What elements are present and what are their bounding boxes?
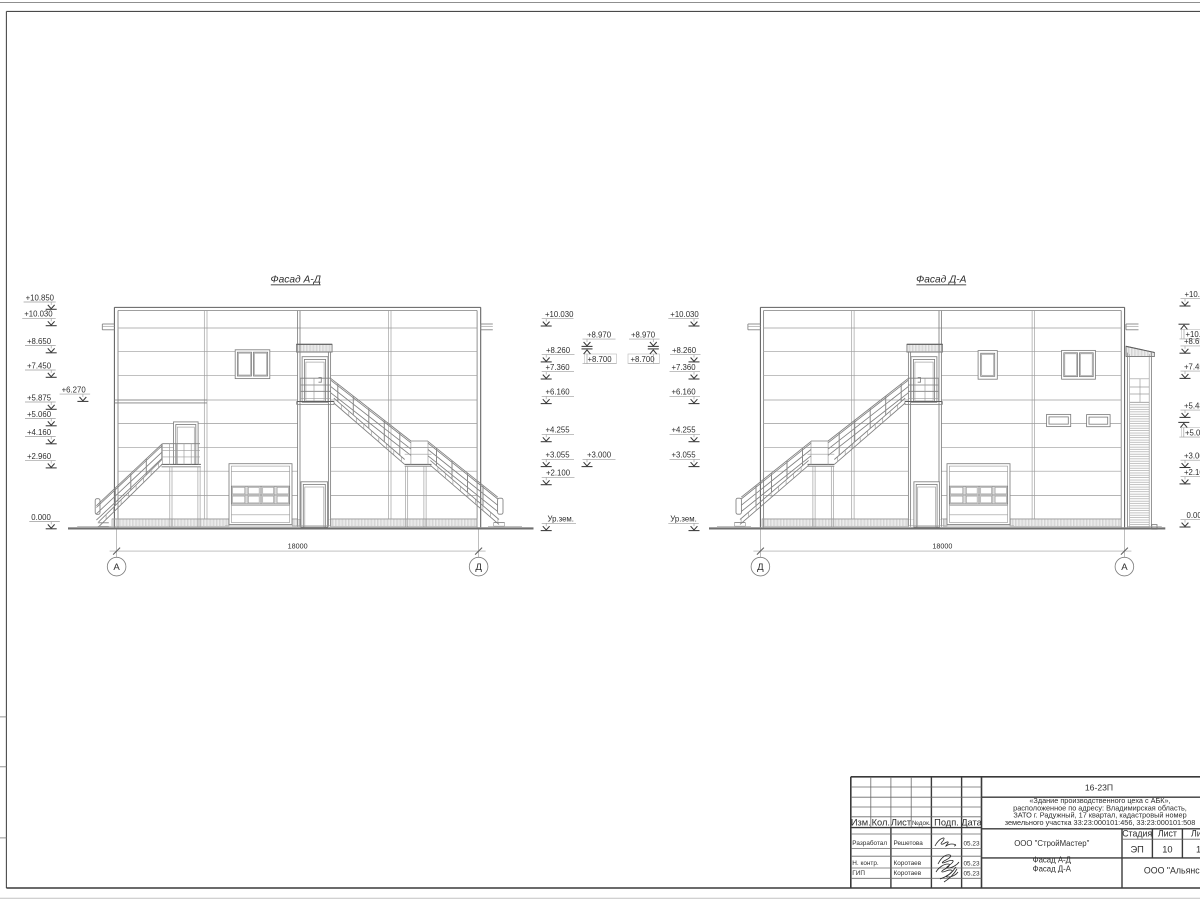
svg-text:Лист: Лист (891, 817, 912, 827)
svg-text:+6.160: +6.160 (546, 388, 571, 397)
svg-text:Фасад А-Д: Фасад А-Д (271, 274, 321, 285)
svg-text:ООО "СтройМастер": ООО "СтройМастер" (1014, 839, 1089, 848)
svg-text:+10.850: +10.850 (1185, 290, 1200, 299)
svg-text:+8.700: +8.700 (588, 355, 613, 364)
svg-text:Стадия: Стадия (1122, 829, 1152, 839)
svg-text:+3.055: +3.055 (546, 451, 571, 460)
svg-text:земельного участка 33:23:00010: земельного участка 33:23:000101:456, 33:… (1005, 818, 1196, 827)
svg-text:+10.850: +10.850 (26, 293, 55, 302)
svg-text:Кол.: Кол. (872, 817, 890, 827)
svg-text:05.23: 05.23 (964, 870, 980, 877)
svg-text:+8.260: +8.260 (672, 346, 697, 355)
svg-text:0.000: 0.000 (1187, 511, 1200, 520)
svg-text:Д: Д (475, 562, 482, 573)
svg-text:Фасад А-Д: Фасад А-Д (1033, 856, 1072, 865)
svg-text:+8.650: +8.650 (1184, 337, 1200, 346)
svg-text:+10.030: +10.030 (545, 310, 574, 319)
svg-text:Коротаев: Коротаев (894, 860, 922, 867)
svg-text:Фасад Д-А: Фасад Д-А (1033, 865, 1072, 874)
svg-text:+10.030: +10.030 (670, 310, 699, 319)
svg-text:+5.080: +5.080 (1185, 428, 1200, 437)
svg-text:Лис: Лис (1191, 829, 1200, 839)
svg-text:18000: 18000 (288, 541, 308, 550)
svg-text:№док.: №док. (912, 820, 931, 827)
svg-text:+4.255: +4.255 (546, 426, 571, 435)
svg-text:+2.100: +2.100 (546, 469, 571, 478)
svg-text:+10.030: +10.030 (24, 310, 53, 319)
svg-text:Ур.зем.: Ур.зем. (670, 515, 696, 524)
svg-text:05.23: 05.23 (964, 840, 980, 847)
svg-text:+8.650: +8.650 (27, 337, 52, 346)
svg-text:+3.000: +3.000 (1184, 452, 1200, 461)
svg-text:Фасад Д-А: Фасад Д-А (916, 274, 967, 285)
svg-text:10: 10 (1162, 844, 1172, 854)
svg-text:Коротаев: Коротаев (894, 870, 922, 877)
svg-text:16-23П: 16-23П (1085, 783, 1113, 793)
svg-text:+6.160: +6.160 (672, 388, 697, 397)
svg-text:+8.970: +8.970 (631, 330, 656, 339)
svg-text:+4.255: +4.255 (672, 426, 697, 435)
svg-text:Подп.: Подп. (934, 817, 959, 827)
svg-text:+5.060: +5.060 (27, 410, 52, 419)
svg-text:+8.260: +8.260 (546, 346, 571, 355)
svg-text:Разработал: Разработал (852, 839, 887, 847)
svg-text:+7.360: +7.360 (546, 363, 571, 372)
svg-text:ЭП: ЭП (1131, 844, 1144, 854)
svg-text:А: А (113, 562, 120, 573)
svg-text:05.23: 05.23 (964, 860, 980, 867)
svg-text:Лист: Лист (1158, 829, 1177, 839)
svg-text:+7.450: +7.450 (1184, 362, 1200, 371)
svg-text:+6.270: +6.270 (62, 385, 87, 394)
svg-text:+7.360: +7.360 (672, 363, 697, 372)
svg-text:Решетова: Решетова (894, 840, 924, 847)
svg-text:Н. контр.: Н. контр. (852, 860, 879, 867)
svg-text:+5.485: +5.485 (1184, 401, 1200, 410)
svg-text:0.000: 0.000 (31, 513, 51, 522)
svg-text:+2.100: +2.100 (1184, 468, 1200, 477)
svg-text:+8.700: +8.700 (631, 355, 656, 364)
svg-text:Изм.: Изм. (851, 817, 871, 827)
svg-text:Ур.зем.: Ур.зем. (548, 515, 574, 524)
svg-text:ГИП: ГИП (852, 870, 865, 877)
svg-text:ООО "Альянспроект": ООО "Альянспроект" (1144, 865, 1200, 875)
svg-text:18000: 18000 (932, 541, 952, 550)
svg-text:+4.160: +4.160 (27, 428, 52, 437)
svg-text:1: 1 (1196, 844, 1200, 854)
svg-text:А: А (1121, 562, 1128, 573)
svg-text:Дата: Дата (961, 817, 982, 827)
svg-text:+8.970: +8.970 (587, 330, 612, 339)
svg-text:+3.000: +3.000 (587, 451, 612, 460)
svg-text:+5.875: +5.875 (27, 393, 52, 402)
svg-text:+7.450: +7.450 (27, 361, 52, 370)
svg-text:+3.055: +3.055 (672, 451, 697, 460)
svg-text:Д: Д (757, 562, 764, 573)
svg-text:+2.960: +2.960 (27, 452, 52, 461)
